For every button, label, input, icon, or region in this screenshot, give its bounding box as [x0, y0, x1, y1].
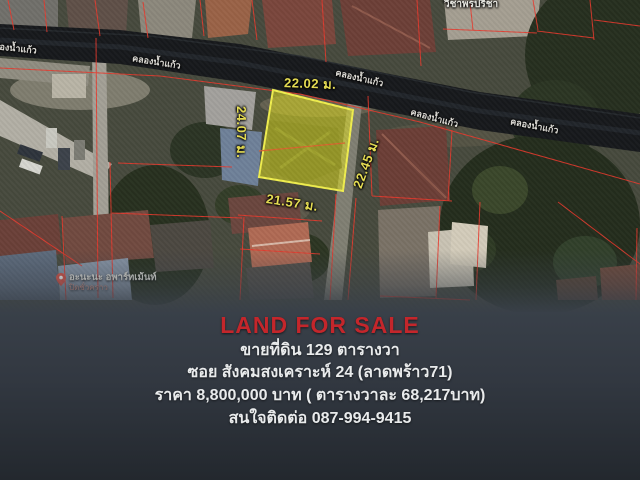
dimension-label-top: 22.02 ม. — [284, 72, 337, 95]
satellite-scene — [0, 0, 640, 312]
map-pin-icon — [56, 273, 66, 286]
poi-name: อะนะนะ อพาร์ทเม้นท์ — [69, 272, 157, 283]
sale-line-price: ราคา 8,800,000 บาท ( ตารางวาละ 68,217บาท… — [0, 383, 640, 408]
sale-line-contact: สนใจติดต่อ 087-994-9415 — [0, 406, 640, 431]
land-sale-flyer: 22.02 ม. 24.07 ม. 22.45 ม. 21.57 ม. คลอง… — [0, 0, 640, 480]
apartment-poi: อะนะนะ อพาร์ทเม้นท์ ปิดชั่วคราว — [56, 272, 157, 292]
dimension-label-left: 24.07 ม. — [231, 106, 252, 158]
street-name-label: วิชาพรปรีชา — [444, 0, 498, 12]
sale-line-address: ซอย สังคมสงเคราะห์ 24 (ลาดพร้าว71) — [0, 360, 640, 385]
poi-status: ปิดชั่วคราว — [69, 283, 157, 292]
satellite-map: 22.02 ม. 24.07 ม. 22.45 ม. 21.57 ม. คลอง… — [0, 0, 640, 312]
sale-title: LAND FOR SALE — [0, 312, 640, 339]
